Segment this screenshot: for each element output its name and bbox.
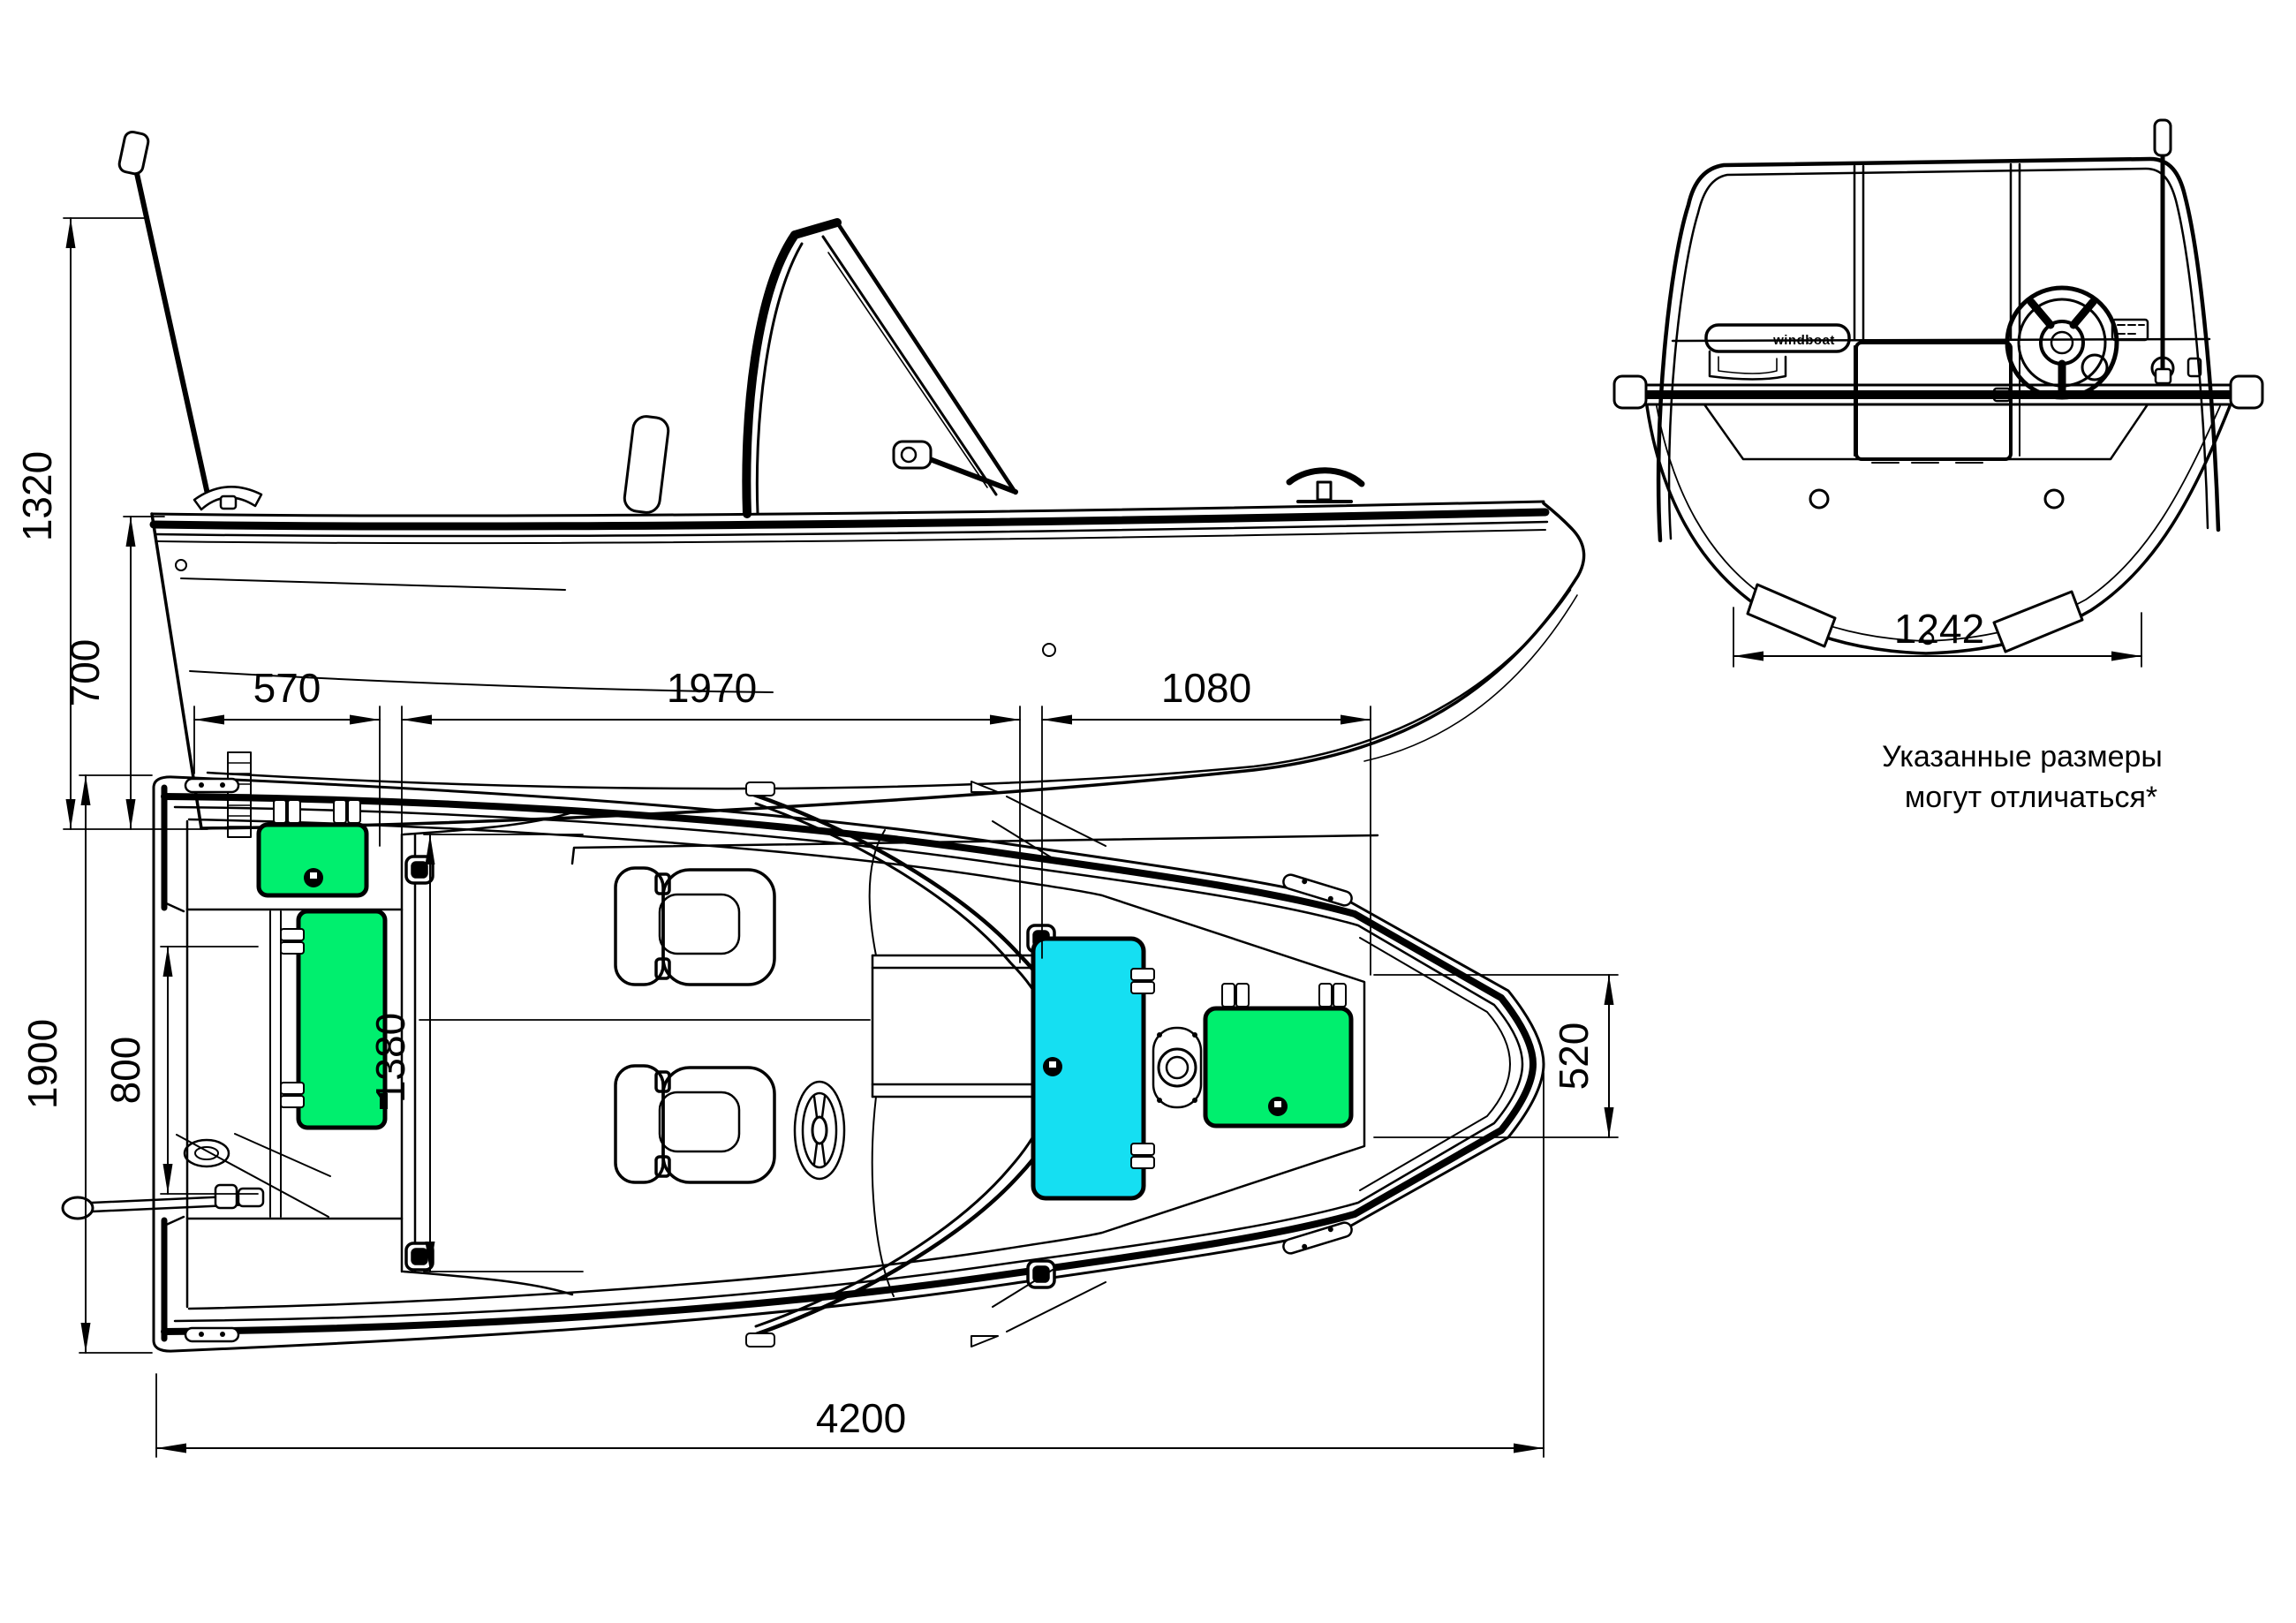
front-view — [1614, 120, 2262, 667]
annotation-line2: могут отличаться* — [1905, 781, 2157, 814]
dim-motorwell — [161, 947, 258, 1194]
top-view — [63, 706, 1618, 1457]
dim-cockpit-width — [424, 834, 583, 1272]
dim-bow-width-label: 520 — [1551, 1023, 1597, 1091]
windshield-side — [746, 223, 1016, 514]
stern-hatch — [259, 800, 366, 895]
brand-label: windboat — [1772, 333, 1835, 348]
mooring-rod — [63, 1185, 263, 1219]
walkthrough-door — [1856, 343, 2011, 463]
boat-blueprint: 1320 700 — [0, 0, 2296, 1623]
dim-overall-length-label: 4200 — [816, 1395, 906, 1441]
bow-green-hatch — [1205, 984, 1351, 1126]
seat-port — [616, 868, 774, 985]
dim-hull-depth-label: 700 — [62, 639, 108, 707]
dim-transom-width-label: 1242 — [1894, 606, 1984, 652]
dim-beam-label: 1900 — [19, 1019, 65, 1109]
blueprint-sheet: 1320 700 — [0, 0, 2296, 1623]
dim-stern-section-label: 570 — [253, 665, 321, 711]
dim-cockpit-length-label: 1970 — [667, 665, 757, 711]
annotation-line1: Указанные размеры — [1882, 740, 2163, 774]
keel-line — [201, 503, 1584, 828]
dim-bow-section-label: 1080 — [1161, 665, 1251, 711]
bow-cyan-hatch — [1033, 939, 1154, 1198]
seat-starboard — [616, 1066, 774, 1182]
deck-fittings — [406, 857, 1054, 1287]
dash-panel — [2082, 320, 2201, 380]
helm-wheel-top — [795, 1082, 844, 1179]
dim-cockpit-width-label: 1380 — [367, 1013, 413, 1103]
fuel-filler — [1153, 1028, 1201, 1107]
ski-post — [623, 415, 670, 514]
cockpit-coaming — [404, 812, 572, 1295]
windshield-front — [1658, 159, 2218, 540]
steering-wheel — [2007, 288, 2117, 397]
dim-overall-height-label: 1320 — [14, 451, 60, 541]
stern-light-pole — [118, 131, 261, 510]
side-view — [64, 131, 1584, 864]
bow-cleat-side — [1289, 471, 1362, 502]
dim-motorwell-label: 800 — [102, 1037, 148, 1105]
